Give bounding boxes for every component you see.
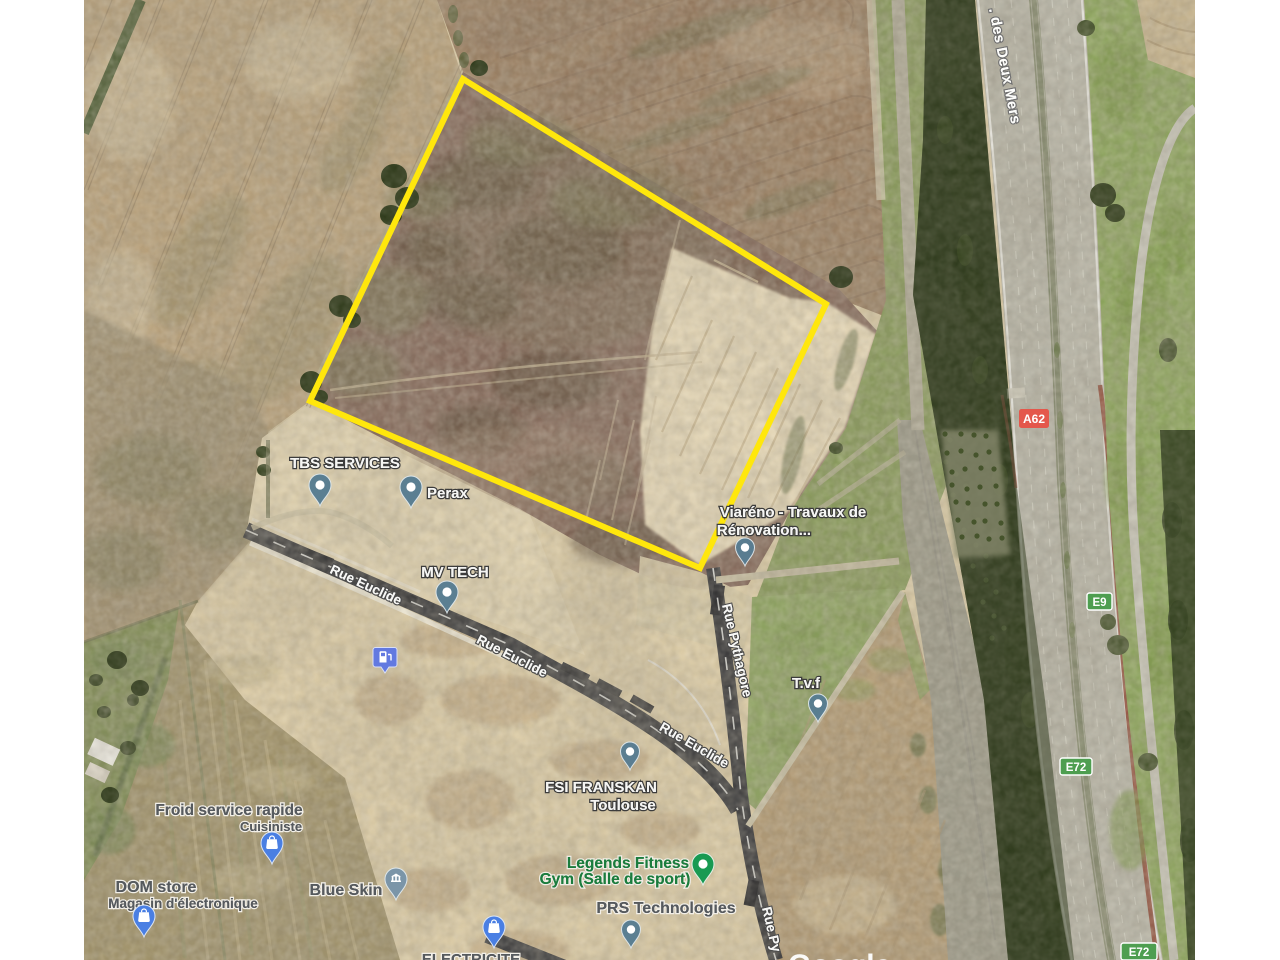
svg-text:TBS SERVICES: TBS SERVICES — [290, 455, 400, 472]
svg-text:Rénovation...: Rénovation... — [717, 522, 811, 539]
svg-text:E72: E72 — [1066, 762, 1086, 774]
svg-text:MV TECH: MV TECH — [421, 564, 489, 581]
svg-text:Legends Fitness: Legends Fitness — [567, 855, 689, 872]
svg-text:FSI FRANSKAN: FSI FRANSKAN — [545, 779, 657, 796]
svg-text:ELECTRICITE: ELECTRICITE — [422, 951, 520, 960]
svg-text:Perax: Perax — [427, 485, 469, 502]
svg-text:A62: A62 — [1023, 412, 1045, 426]
svg-text:E72: E72 — [1129, 947, 1149, 959]
svg-text:Gym (Salle de sport): Gym (Salle de sport) — [540, 871, 691, 888]
svg-text:PRS Technologies: PRS Technologies — [596, 900, 735, 917]
svg-text:E9: E9 — [1092, 597, 1106, 609]
svg-text:Google: Google — [788, 949, 891, 960]
svg-text:Viaréno - Travaux de: Viaréno - Travaux de — [720, 504, 866, 521]
svg-text:Froid service rapide: Froid service rapide — [155, 802, 303, 819]
svg-text:Magasin d'électronique: Magasin d'électronique — [108, 896, 258, 911]
svg-text:DOM store: DOM store — [116, 879, 197, 896]
svg-text:T.v.f: T.v.f — [792, 675, 821, 692]
svg-text:Blue Skin: Blue Skin — [310, 882, 383, 899]
svg-text:Toulouse: Toulouse — [590, 797, 656, 814]
